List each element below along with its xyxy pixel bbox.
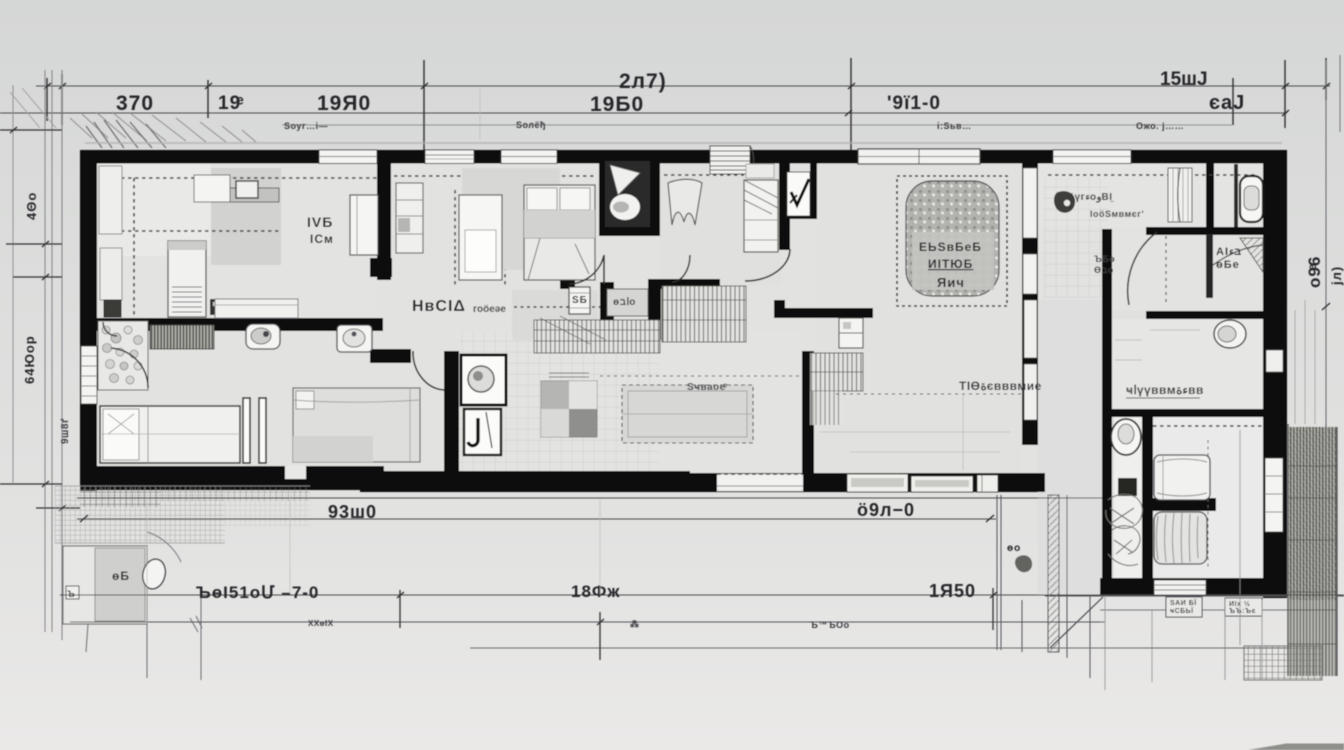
svg-text:Ъ: Ъ [67,589,75,599]
svg-text:АІבء: АІבء [1216,246,1242,258]
svg-text:өБе: өБе [1216,259,1240,271]
svg-text:93ш0: 93ш0 [328,502,377,522]
svg-text:Ожо. ϳ……: Ожо. ϳ…… [1136,121,1184,131]
svg-text:ҹاүүввмءةвв: ҹاүүввмءةвв [1126,383,1204,397]
svg-text:ІVБ: ІVБ [307,214,333,230]
svg-text:64Юор: 64Юор [22,335,37,384]
svg-text:ЪөІ51оՄ –7-0: ЪөІ51оՄ –7-0 [196,583,319,602]
svg-text:2л7): 2л7) [619,70,667,93]
svg-text:19Я0: 19Я0 [317,92,371,115]
svg-text:Ѕолёђ: Ѕолёђ [516,120,546,130]
svg-text:і:Ѕьв…: і:Ѕьв… [937,121,972,131]
svg-text:370: 370 [116,92,154,115]
svg-text:ІоӧЅмвмєгʹ: ІоӧЅмвмєгʹ [1090,209,1144,219]
svg-text:өاבо: өاבо [613,297,636,308]
svg-text:ЅБ: ЅБ [572,295,588,306]
svg-text:9ш8ґ: 9ш8ґ [60,418,71,444]
svg-text:НвCIΔ: НвCIΔ [412,298,466,315]
svg-text:19Б0: 19Б0 [590,93,644,116]
svg-text:⁂: ⁂ [630,618,640,629]
svg-text:өБ: өБ [112,569,130,583]
svg-text:Яич: Яич [937,275,965,290]
svg-text:ЕЬЅвБеБ: ЕЬЅвБеБ [919,240,982,254]
svg-text:ИІх ⅓: ИІх ⅓ [1229,601,1250,608]
svg-text:15шJ: 15шJ [1160,69,1208,90]
svg-text:ҹСБЬЇ: ҹСБЬЇ [1170,607,1194,615]
svg-text:өо: өо [1007,543,1021,554]
svg-text:Ѕҹваоеͤ: Ѕҹваоеͤ [687,382,727,393]
svg-text:о9ͤ6: о9ͤ6 [1305,256,1324,288]
svg-text:Өבо: Өבо [1094,265,1114,275]
svg-text:18Фж: 18Фж [571,582,620,601]
svg-text:ІϹм: ІϹм [310,232,334,246]
svg-text:ЪЪ:Ъє: ЪЪ:Ъє [1229,608,1256,615]
svg-text:Ъ™ЪОо: Ъ™ЪОо [810,620,850,630]
svg-text:TІӨةєвввмие: TІӨةєвввмие [959,379,1042,393]
svg-text:4Θо: 4Θо [24,192,39,220]
svg-text:ИІTЮБ: ИІTЮБ [928,257,973,271]
svg-text:гоӧеәе: гоӧеәе [473,304,506,315]
svg-text:ЪБө: ЪБө [1094,254,1115,264]
svg-text:єаJ: єаJ [1209,92,1245,114]
svg-text:ӧ9л−0: ӧ9л−0 [857,500,915,520]
svg-text:Ѕоуг…і—: Ѕоуг…і— [284,121,328,131]
svg-text:ӧүгءоوВІ̤: ӧүгءоوВІ̤ [1068,192,1114,203]
svg-text:19ͤ: 19ͤ [218,93,244,114]
svg-text:ХХөІХ: ХХөІХ [308,619,334,628]
svg-text:ЅАИ БЇ: ЅАИ БЇ [1170,599,1197,607]
svg-text:1Я50: 1Я50 [929,581,976,601]
svg-text:ʹ9ї1-0: ʹ9ї1-0 [887,93,941,114]
svg-text:јл): јл) [1329,266,1344,286]
